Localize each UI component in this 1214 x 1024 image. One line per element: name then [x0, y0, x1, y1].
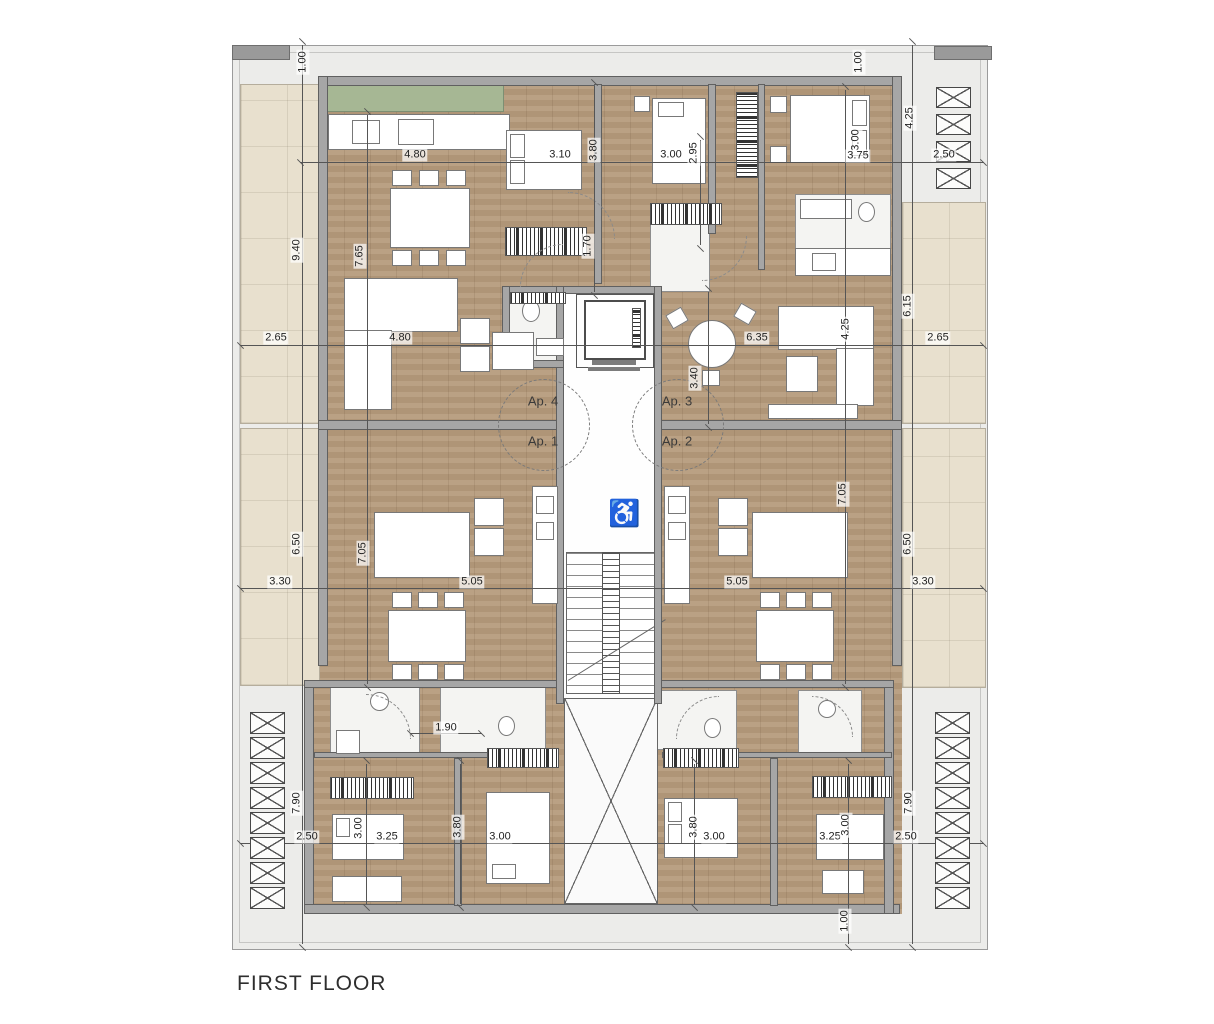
terrace-right-mid: [902, 428, 986, 688]
dimension-line: [240, 345, 984, 346]
chair: [444, 664, 464, 680]
chair: [444, 592, 464, 608]
louver-panel-icon: [250, 837, 285, 859]
louver-panel-icon: [250, 812, 285, 834]
elevator-door: [588, 367, 640, 371]
wheelchair-icon: ♿: [608, 500, 640, 526]
louver-panel-icon: [250, 762, 285, 784]
dimension-line: [300, 162, 984, 163]
nightstand: [770, 146, 787, 163]
louver-panel-icon: [250, 887, 285, 909]
chair: [392, 170, 412, 186]
dimension-label: 2.65: [925, 332, 950, 345]
dimension-label: 6.15: [902, 293, 915, 318]
wardrobe: [812, 776, 892, 798]
sofa-chaise: [344, 330, 392, 410]
chair: [418, 592, 438, 608]
wall: [594, 84, 602, 284]
louver-panel-icon: [936, 87, 971, 108]
apartment-label: Ap. 2: [662, 434, 692, 449]
dining-table: [390, 188, 470, 248]
side-table: [492, 332, 534, 370]
terrace-left-top: [240, 84, 320, 424]
kitchen-sink: [536, 496, 554, 514]
coffee-table: [460, 346, 490, 372]
dimension-label: 3.10: [547, 149, 572, 162]
louver-panel-icon: [935, 887, 970, 909]
louver-panel-icon: [935, 712, 970, 734]
elevator-door: [592, 360, 636, 365]
pillow: [336, 818, 350, 837]
dimension-label: 4.80: [402, 149, 427, 162]
dimension-label: 7.05: [357, 540, 370, 565]
dimension-label: 3.00: [701, 831, 726, 844]
louver-panel-icon: [250, 787, 285, 809]
wall: [658, 680, 894, 688]
terrace-left-mid: [240, 428, 320, 686]
wall: [758, 84, 765, 270]
dimension-label: 2.50: [294, 831, 319, 844]
round-table: [688, 320, 736, 368]
dimension-label: 3.25: [374, 831, 399, 844]
wall: [304, 904, 900, 914]
coffee-table: [786, 356, 818, 392]
desk: [332, 876, 402, 902]
wall: [892, 76, 902, 666]
apartment-label: Ap. 1: [528, 434, 558, 449]
chair: [392, 250, 412, 266]
toilet: [498, 716, 515, 736]
chair: [392, 664, 412, 680]
dining-table: [756, 610, 834, 662]
dining-table: [388, 610, 466, 662]
shower: [336, 730, 360, 754]
nightstand: [770, 96, 787, 113]
dimension-label: 3.00: [353, 815, 366, 840]
dimension-label: 1.00: [297, 49, 310, 74]
dimension-label: 2.95: [688, 140, 701, 165]
wall: [304, 684, 314, 914]
wall: [654, 286, 662, 704]
coffee-table: [718, 528, 748, 556]
dimension-line: [366, 764, 367, 904]
louver-panel-icon: [250, 862, 285, 884]
dimension-label: 1.90: [433, 722, 458, 735]
pillow: [668, 824, 682, 844]
apartment-label: Ap. 4: [528, 394, 558, 409]
kitchen-sink: [668, 496, 686, 514]
dimension-label: 6.50: [902, 531, 915, 556]
sofa-chaise: [836, 348, 874, 406]
wardrobe: [736, 92, 758, 178]
chair: [812, 592, 832, 608]
dimension-line: [240, 588, 984, 589]
dimension-line: [708, 292, 709, 424]
coffee-table: [718, 498, 748, 526]
dimension-line: [240, 843, 984, 844]
toilet: [858, 202, 875, 222]
elevator-rail: [632, 308, 641, 348]
wall: [770, 758, 778, 906]
kitchen-sink: [352, 120, 380, 144]
chair: [419, 170, 439, 186]
wardrobe: [487, 748, 559, 768]
chair: [392, 592, 412, 608]
chair: [419, 250, 439, 266]
kitchen-sink: [812, 253, 836, 271]
louver-panel-icon: [935, 812, 970, 834]
wall: [304, 680, 562, 688]
dimension-line: [594, 86, 595, 292]
nightstand: [634, 96, 650, 112]
pillow: [492, 864, 516, 879]
cooktop: [398, 119, 434, 145]
dimension-line: [367, 115, 368, 684]
drawing-title: FIRST FLOOR: [237, 972, 386, 996]
pillow: [510, 160, 525, 184]
coffee-table: [474, 498, 504, 526]
dimension-label: 1.00: [853, 49, 866, 74]
dimension-label: 3.80: [688, 814, 701, 839]
dimension-label: 3.75: [845, 150, 870, 163]
dimension-label: 7.65: [354, 243, 367, 268]
sofa: [344, 278, 458, 332]
louver-panel-icon: [250, 712, 285, 734]
sofa: [752, 512, 848, 578]
dimension-label: 4.25: [840, 316, 853, 341]
dimension-label: 3.00: [487, 831, 512, 844]
apartment-label: Ap. 3: [662, 394, 692, 409]
louver-panel-icon: [250, 737, 285, 759]
cooktop: [536, 522, 554, 540]
louver-panel-icon: [935, 762, 970, 784]
dimension-label: 2.50: [931, 149, 956, 162]
louver-panel-icon: [936, 114, 971, 135]
chair: [786, 592, 806, 608]
louver-panel-icon: [935, 787, 970, 809]
dimension-label: 4.25: [904, 105, 917, 130]
louver-panel-icon: [935, 862, 970, 884]
dimension-label: 3.30: [267, 576, 292, 589]
sofa: [374, 512, 470, 578]
cooktop: [668, 522, 686, 540]
dimension-label: 1.00: [839, 908, 852, 933]
pillow: [658, 102, 684, 117]
pillow: [852, 100, 867, 126]
chair: [760, 664, 780, 680]
chair: [702, 370, 720, 386]
bathroom: [650, 222, 710, 292]
chair: [812, 664, 832, 680]
wall: [318, 76, 902, 86]
dimension-label: 5.05: [459, 576, 484, 589]
dimension-label: 7.90: [903, 790, 916, 815]
site-corner-bar: [232, 45, 290, 60]
coffee-table: [460, 318, 490, 344]
floor-plan-canvas: ♿: [0, 0, 1214, 1024]
dimension-label: 6.50: [291, 531, 304, 556]
chair: [786, 664, 806, 680]
dimension-label: 3.00: [658, 149, 683, 162]
dimension-label: 3.80: [588, 137, 601, 162]
stair-stringer: [602, 552, 620, 694]
desk: [822, 870, 864, 894]
sink: [536, 338, 564, 356]
louver-panel-icon: [935, 737, 970, 759]
pillow: [510, 134, 525, 158]
louver-panel-icon: [936, 168, 971, 189]
planter: [322, 84, 504, 112]
chair: [760, 592, 780, 608]
light-well-shaft: [564, 698, 658, 904]
dimension-label: 7.90: [291, 790, 304, 815]
wardrobe: [330, 777, 414, 799]
wardrobe: [650, 203, 722, 225]
chair: [418, 664, 438, 680]
wall: [318, 76, 328, 666]
dimension-label: 3.00: [840, 812, 853, 837]
dimension-label: 4.80: [387, 332, 412, 345]
sofa: [778, 306, 874, 350]
dimension-label: 9.40: [291, 237, 304, 262]
dimension-label: 3.30: [910, 576, 935, 589]
dimension-label: 1.70: [582, 233, 595, 258]
dimension-label: 3.80: [452, 814, 465, 839]
washer: [510, 292, 566, 304]
dimension-label: 6.35: [744, 332, 769, 345]
dimension-line: [845, 90, 846, 684]
dimension-label: 2.50: [893, 831, 918, 844]
dimension-label: 3.40: [689, 365, 702, 390]
terrace-right-top: [902, 202, 986, 424]
wardrobe: [663, 748, 739, 768]
dimension-label: 5.05: [724, 576, 749, 589]
coffee-table: [474, 528, 504, 556]
wall: [884, 684, 894, 914]
pillow: [668, 802, 682, 822]
kitchen-counter: [795, 248, 891, 276]
site-corner-bar: [934, 46, 992, 60]
dimension-label: 2.65: [263, 332, 288, 345]
chair: [446, 170, 466, 186]
louver-panel-icon: [935, 837, 970, 859]
chair: [446, 250, 466, 266]
dimension-label: 7.05: [837, 481, 850, 506]
